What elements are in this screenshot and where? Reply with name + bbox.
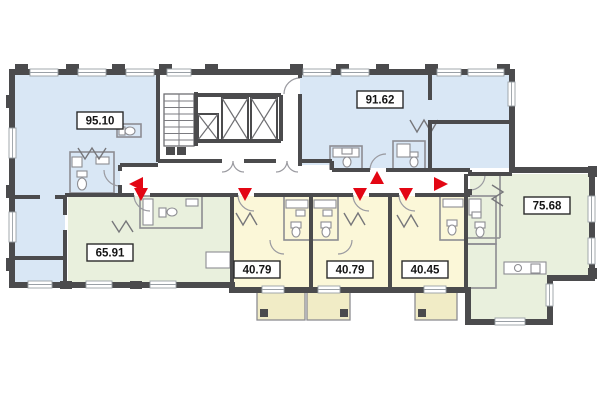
mailbox-2 (177, 147, 186, 155)
balconies (257, 290, 457, 320)
mailbox-1 (166, 147, 175, 155)
area-label-75-68: 75.68 (524, 197, 570, 214)
area-value-75-68: 75.68 (533, 201, 562, 213)
area-value-91-62: 91.62 (366, 95, 395, 107)
area-label-65-91: 65.91 (87, 244, 133, 261)
area-label-91-62: 91.62 (357, 91, 403, 108)
area-label-40-45: 40.45 (402, 261, 448, 278)
area-value-40-79-left: 40.79 (243, 265, 272, 277)
area-label-95-10: 95.10 (77, 112, 123, 129)
area-value-65-91: 65.91 (96, 248, 125, 260)
area-value-40-45: 40.45 (411, 265, 440, 277)
area-value-40-79-right: 40.79 (336, 265, 365, 277)
staircase (164, 94, 194, 146)
area-label-40-79-right: 40.79 (327, 261, 373, 278)
area-value-95-10: 95.10 (86, 116, 115, 128)
floor-plan: 95.10 91.62 65.91 40.79 40.79 40.45 75.6… (0, 0, 600, 400)
kitchen-counter (504, 262, 546, 274)
floor-plan-drawing: 95.10 91.62 65.91 40.79 40.79 40.45 75.6… (0, 0, 600, 400)
balcony-post-3 (418, 309, 426, 317)
balcony-post-2 (340, 309, 348, 317)
area-label-40-79-left: 40.79 (234, 261, 280, 278)
balcony-post-1 (260, 309, 268, 317)
